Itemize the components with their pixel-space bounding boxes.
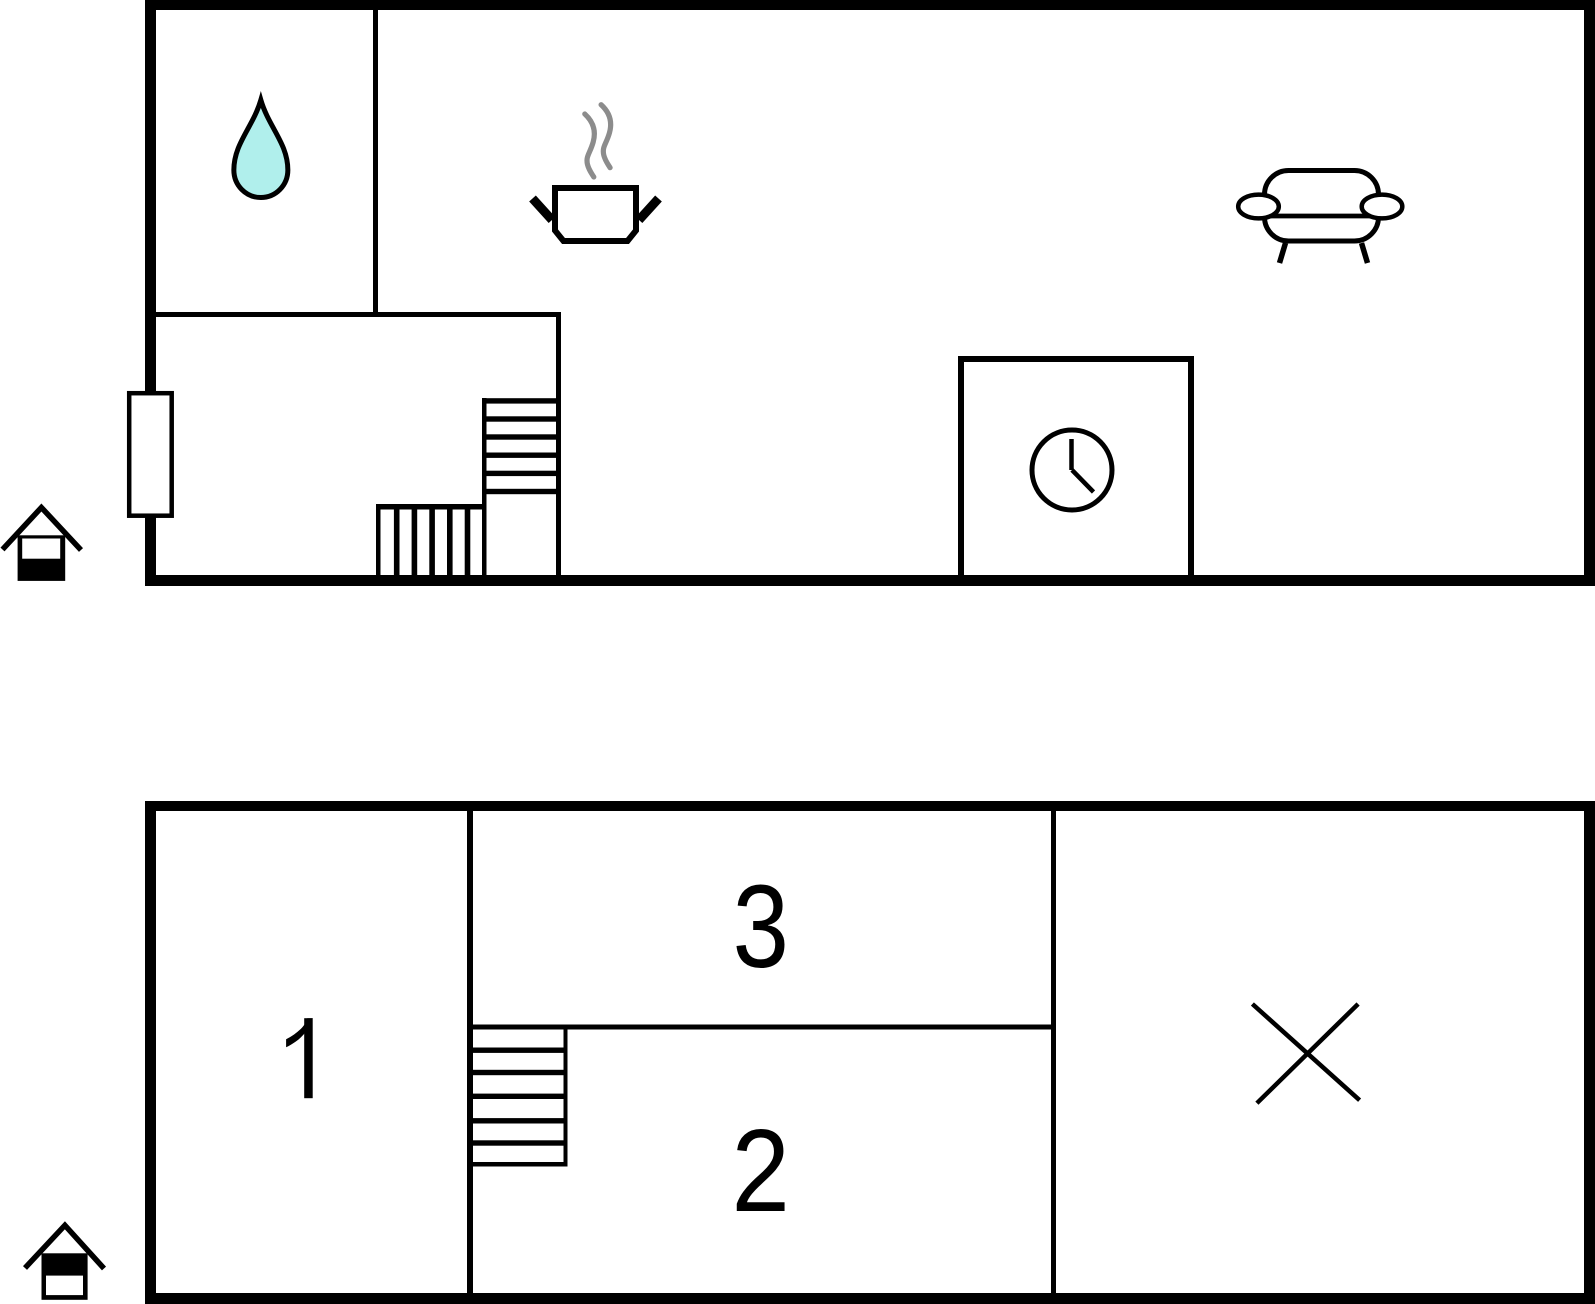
svg-text:2: 2 [732,1107,790,1236]
svg-text:3: 3 [733,861,789,993]
